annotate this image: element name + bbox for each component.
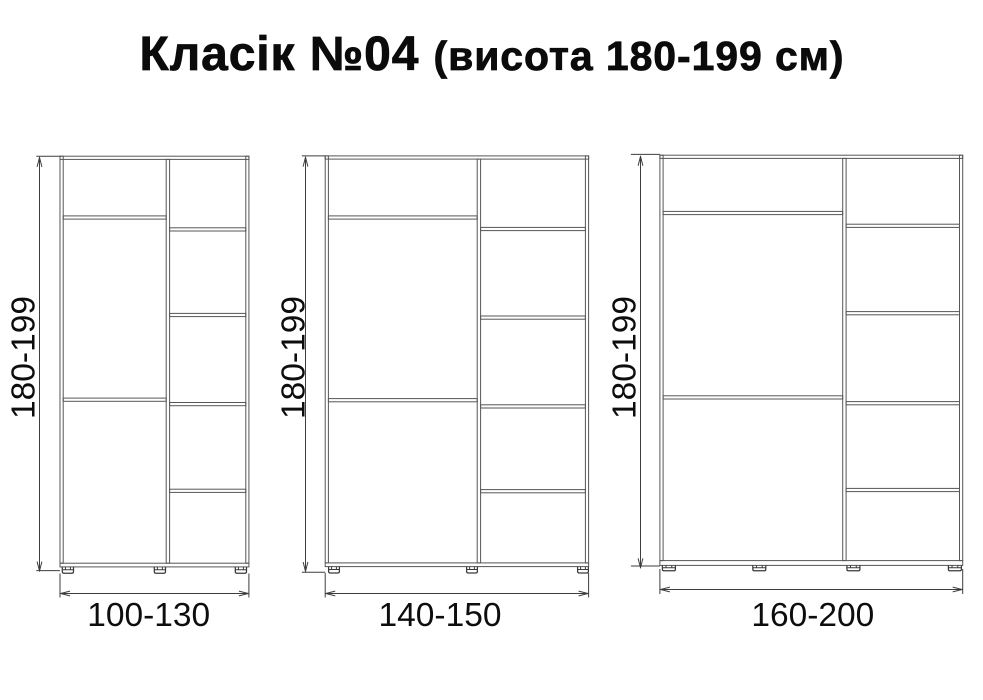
svg-text:160-200: 160-200 [751,597,874,634]
svg-text:140-150: 140-150 [379,597,502,634]
svg-text:180-199: 180-199 [607,296,644,419]
svg-text:180-199: 180-199 [276,296,313,419]
svg-text:Класік №04 (висота 180-199 см): Класік №04 (висота 180-199 см) [140,28,845,81]
svg-text:180-199: 180-199 [6,296,43,419]
svg-text:100-130: 100-130 [87,597,210,634]
